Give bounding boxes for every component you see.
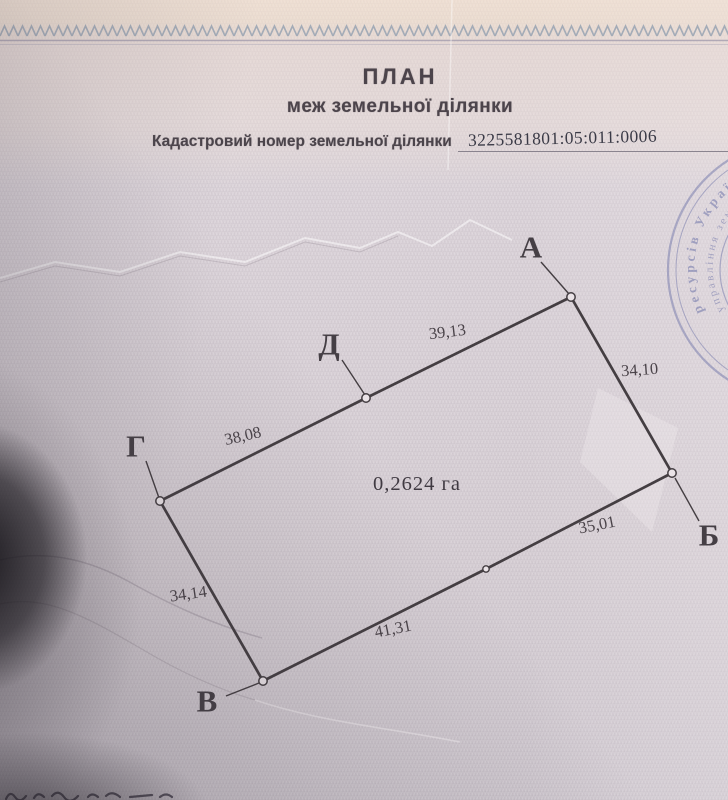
side-length-label: 38,08 xyxy=(223,422,263,449)
leader-line-b xyxy=(675,478,699,521)
leader-line-a xyxy=(541,262,569,294)
clipped-text-fragment xyxy=(2,787,232,800)
vertex-label-v: В xyxy=(197,684,218,719)
vertex-label-d: Д xyxy=(318,327,339,362)
intermediate-point xyxy=(483,566,489,572)
land-parcel-diagram: АБВГД39,1334,1035,0141,3134,1438,080,262… xyxy=(0,0,728,800)
leader-line-g xyxy=(146,461,159,498)
side-length-label: 35,01 xyxy=(577,512,617,538)
photographed-land-plan-document: ПЛАН меж земельної ділянки Кадастровий н… xyxy=(0,0,728,800)
vertex-point-v xyxy=(259,677,267,685)
stamp-outer-ring xyxy=(668,140,728,400)
vertex-point-a xyxy=(567,293,575,301)
leader-line-d xyxy=(342,360,365,395)
vertex-label-a: А xyxy=(520,230,543,265)
vertex-label-b: Б xyxy=(699,518,720,553)
official-round-stamp: ресурсів Украї управління зем х о xyxy=(630,138,728,410)
leader-line-v xyxy=(226,683,259,696)
vertex-label-g: Г xyxy=(126,429,146,464)
side-length-label: 39,13 xyxy=(428,320,467,343)
side-length-label: 34,14 xyxy=(169,582,208,606)
vertex-point-b xyxy=(668,469,676,477)
area-label: 0,2624 га xyxy=(373,473,461,495)
side-length-label: 41,31 xyxy=(373,616,413,642)
vertex-point-d xyxy=(362,394,370,402)
vertex-point-g xyxy=(156,497,164,505)
